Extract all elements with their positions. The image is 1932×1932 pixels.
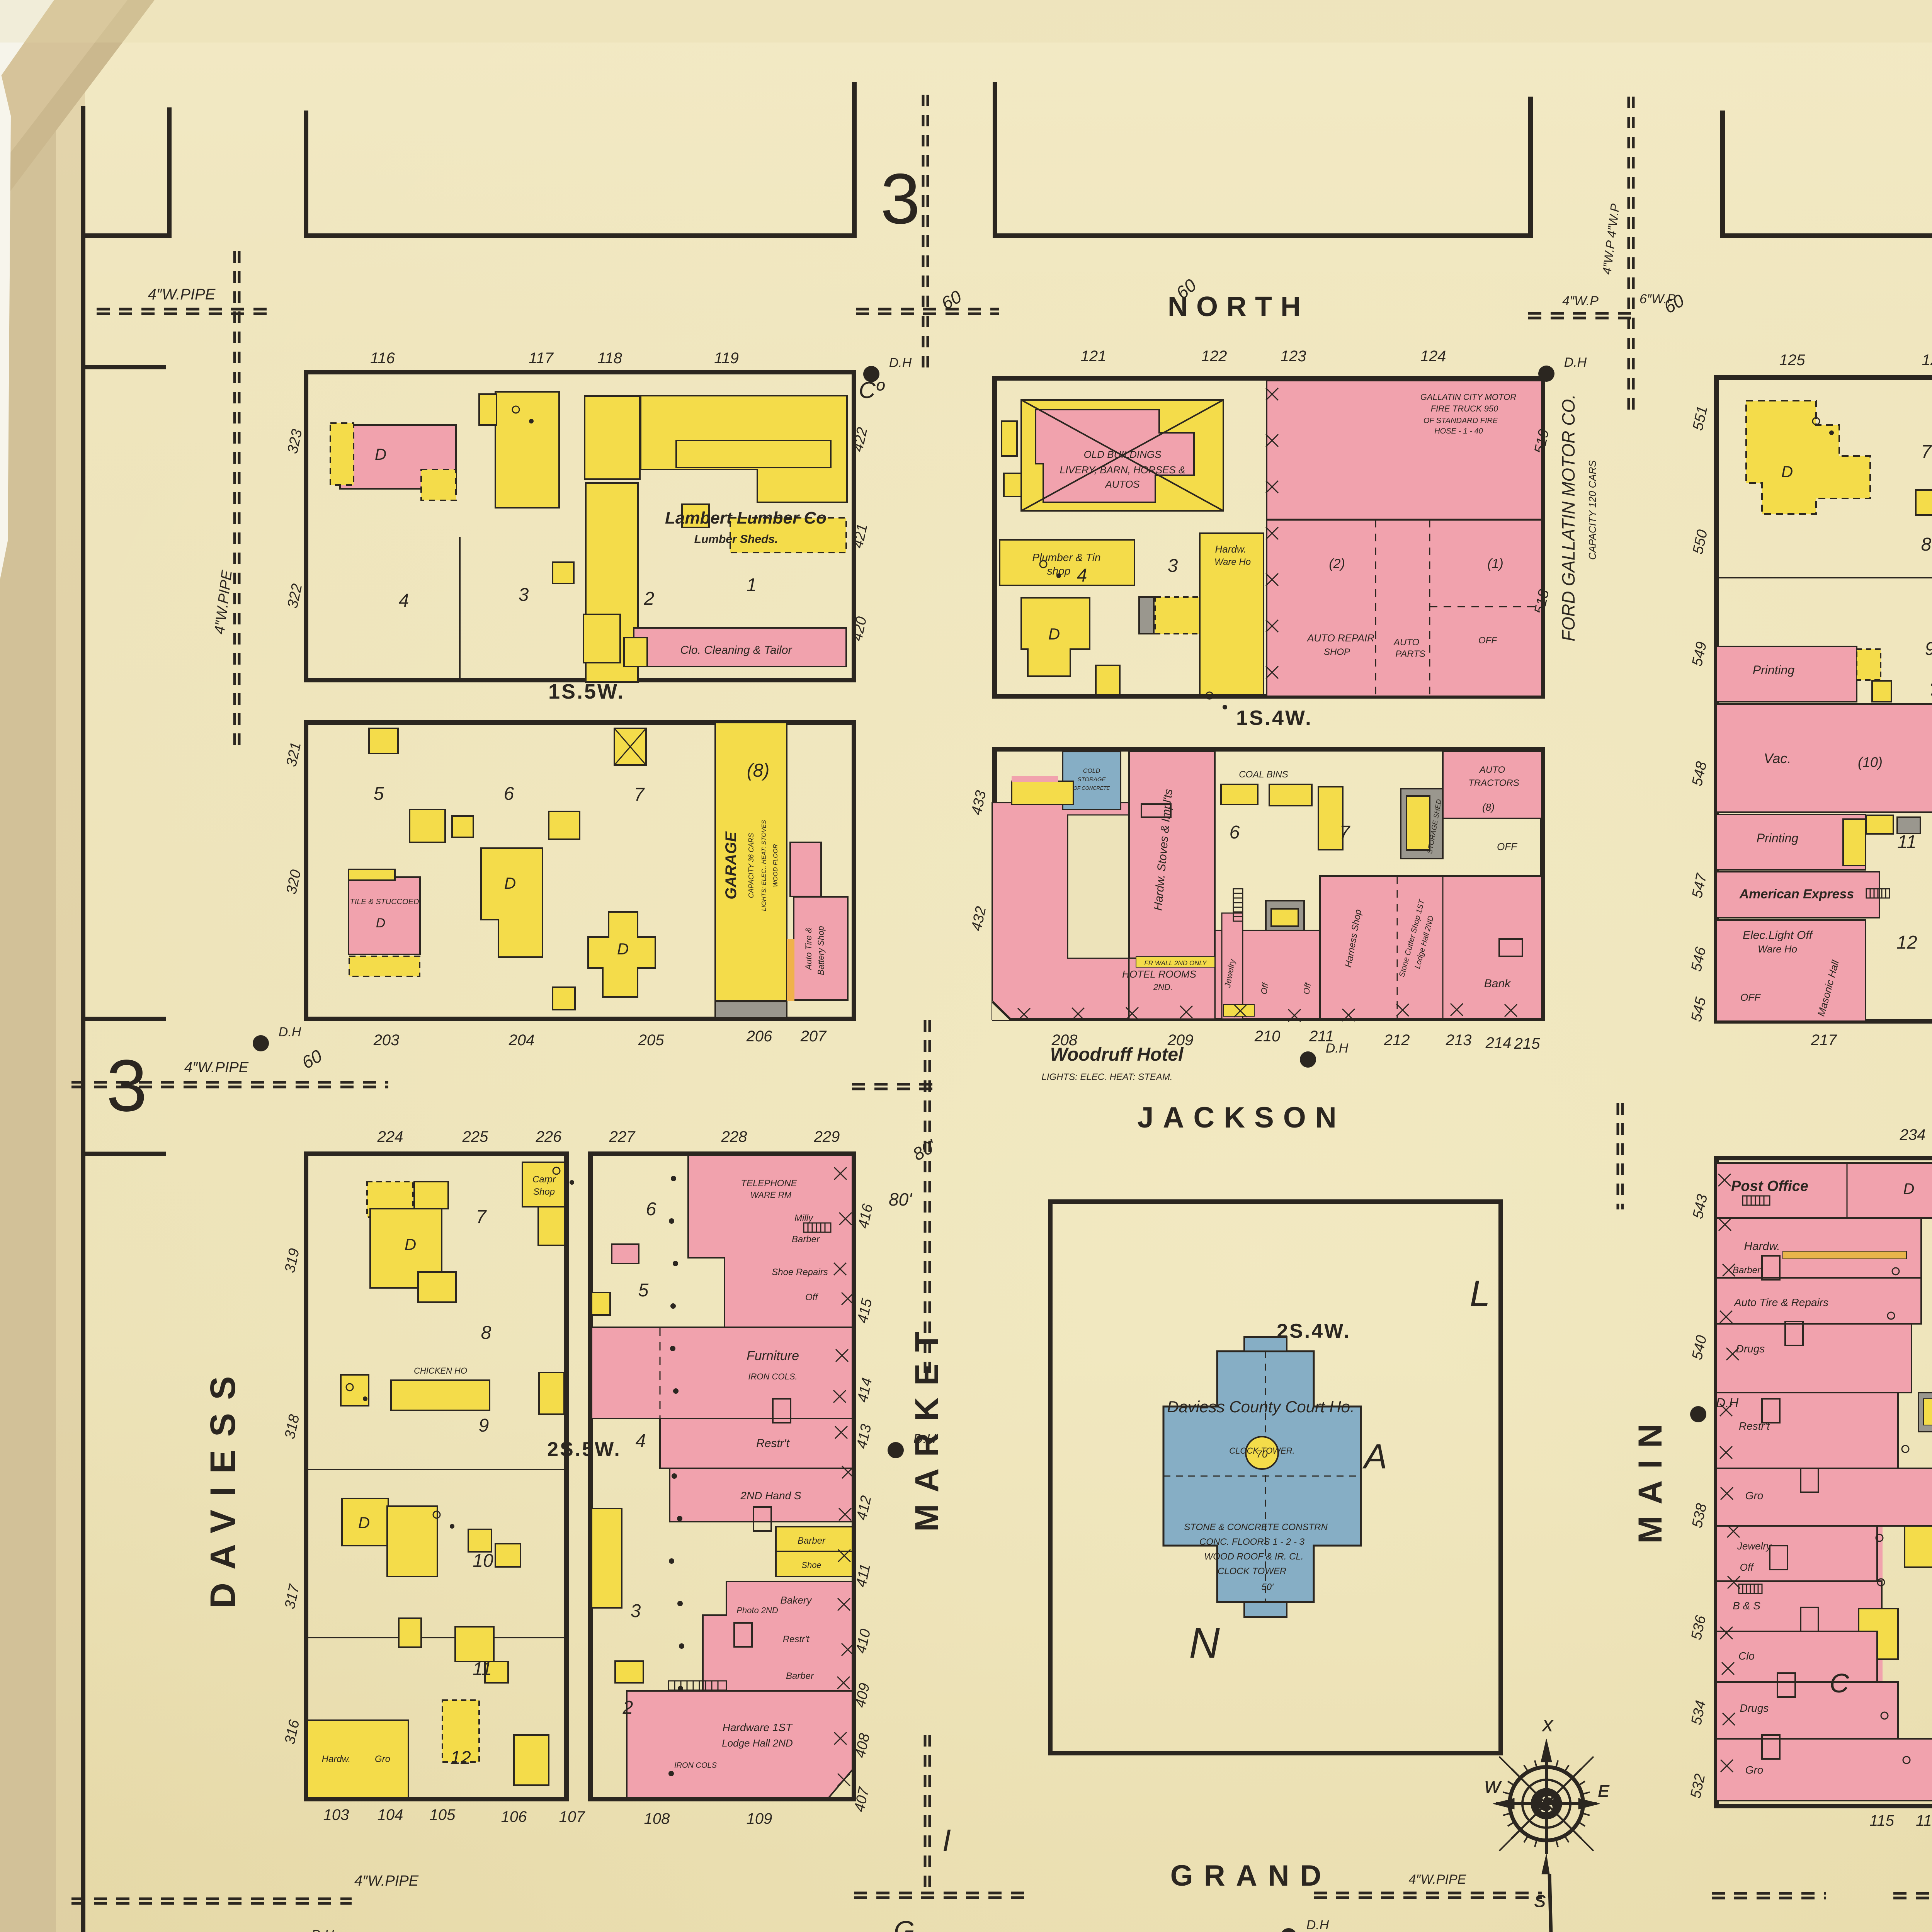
svg-text:Post Office: Post Office bbox=[1731, 1178, 1808, 1194]
svg-text:2S.5W.: 2S.5W. bbox=[547, 1438, 621, 1461]
svg-text:TELEPHONE: TELEPHONE bbox=[741, 1178, 797, 1189]
svg-text:227: 227 bbox=[609, 1128, 636, 1145]
svg-text:7: 7 bbox=[634, 784, 645, 805]
svg-text:204: 204 bbox=[509, 1032, 535, 1049]
svg-text:D: D bbox=[358, 1514, 370, 1532]
svg-text:4: 4 bbox=[399, 590, 409, 611]
svg-text:Elec.Light Off: Elec.Light Off bbox=[1743, 929, 1813, 942]
svg-text:D: D bbox=[405, 1235, 416, 1253]
svg-text:Clo. Cleaning & Tailor: Clo. Cleaning & Tailor bbox=[680, 644, 792, 656]
svg-text:12: 12 bbox=[1896, 932, 1917, 953]
svg-text:11: 11 bbox=[473, 1659, 492, 1679]
svg-text:GRAND: GRAND bbox=[1170, 1859, 1332, 1892]
svg-text:D: D bbox=[1903, 1180, 1915, 1197]
svg-text:Restr't: Restr't bbox=[783, 1634, 810, 1645]
svg-text:234: 234 bbox=[1900, 1126, 1926, 1143]
svg-text:GARAGE: GARAGE bbox=[723, 831, 740, 900]
svg-text:Drugs: Drugs bbox=[1740, 1702, 1769, 1714]
svg-text:118: 118 bbox=[597, 350, 622, 367]
svg-text:109: 109 bbox=[747, 1810, 772, 1827]
svg-text:Printing: Printing bbox=[1753, 663, 1795, 677]
svg-text:(1): (1) bbox=[1487, 556, 1503, 571]
svg-text:Barber: Barber bbox=[792, 1234, 820, 1245]
svg-text:CLOCK TOWER: CLOCK TOWER bbox=[1218, 1566, 1286, 1577]
svg-text:Drugs: Drugs bbox=[1736, 1343, 1765, 1355]
svg-text:CONC. FLOORS 1 - 2 - 3: CONC. FLOORS 1 - 2 - 3 bbox=[1199, 1537, 1305, 1547]
svg-text:2: 2 bbox=[644, 588, 655, 609]
svg-text:4: 4 bbox=[1077, 565, 1087, 586]
svg-text:Shoe Repairs: Shoe Repairs bbox=[772, 1267, 828, 1277]
svg-text:229: 229 bbox=[814, 1128, 840, 1145]
svg-text:Barber: Barber bbox=[786, 1671, 814, 1681]
svg-text:3: 3 bbox=[881, 159, 920, 239]
svg-text:WOOD ROOF & IR. CL.: WOOD ROOF & IR. CL. bbox=[1204, 1551, 1304, 1562]
svg-text:215: 215 bbox=[1514, 1035, 1540, 1052]
svg-text:FIRE TRUCK 950: FIRE TRUCK 950 bbox=[1431, 404, 1499, 413]
svg-text:207: 207 bbox=[800, 1028, 827, 1045]
svg-text:Hardw.: Hardw. bbox=[1215, 543, 1247, 555]
svg-text:11: 11 bbox=[1897, 832, 1917, 852]
svg-text:Off: Off bbox=[1740, 1561, 1754, 1573]
svg-text:X: X bbox=[1542, 1718, 1553, 1735]
svg-text:STONE & CONCRETE CONSTRN: STONE & CONCRETE CONSTRN bbox=[1184, 1522, 1328, 1532]
svg-text:DAVIESS: DAVIESS bbox=[203, 1363, 243, 1608]
svg-text:4″W.PIPE: 4″W.PIPE bbox=[354, 1873, 419, 1889]
svg-text:115: 115 bbox=[1869, 1812, 1895, 1829]
svg-text:4″W.PIPE: 4″W.PIPE bbox=[1409, 1872, 1466, 1887]
svg-text:(10): (10) bbox=[1858, 754, 1883, 770]
svg-text:Restr't: Restr't bbox=[1739, 1420, 1770, 1432]
svg-text:9: 9 bbox=[1925, 639, 1932, 659]
svg-text:MARKET: MARKET bbox=[908, 1320, 946, 1532]
svg-text:214: 214 bbox=[1485, 1034, 1512, 1051]
svg-text:WARE RM: WARE RM bbox=[750, 1190, 792, 1200]
svg-text:206: 206 bbox=[746, 1028, 772, 1045]
svg-text:Plumber & Tin: Plumber & Tin bbox=[1032, 551, 1100, 563]
svg-text:D.H: D.H bbox=[1306, 1918, 1329, 1932]
svg-text:Barber: Barber bbox=[1733, 1265, 1761, 1276]
svg-text:JACKSON: JACKSON bbox=[1137, 1101, 1346, 1134]
svg-text:D: D bbox=[504, 874, 516, 892]
svg-text:AUTO: AUTO bbox=[1479, 765, 1505, 775]
svg-text:103: 103 bbox=[323, 1806, 349, 1823]
svg-text:American Express: American Express bbox=[1739, 887, 1854, 901]
svg-text:126: 126 bbox=[1922, 352, 1932, 369]
svg-text:LIGHTS: ELEC. HEAT: STEAM.: LIGHTS: ELEC. HEAT: STEAM. bbox=[1041, 1072, 1172, 1082]
svg-text:(2): (2) bbox=[1329, 556, 1345, 571]
svg-text:D: D bbox=[375, 445, 386, 463]
svg-text:125: 125 bbox=[1779, 352, 1805, 369]
svg-text:4″W.P: 4″W.P bbox=[1562, 294, 1599, 308]
svg-text:121: 121 bbox=[1081, 348, 1107, 365]
svg-text:Jewelry: Jewelry bbox=[1737, 1540, 1772, 1552]
svg-text:W: W bbox=[1484, 1778, 1502, 1797]
svg-text:5: 5 bbox=[638, 1280, 649, 1301]
svg-text:Auto Tire & Repairs: Auto Tire & Repairs bbox=[1733, 1296, 1828, 1308]
svg-text:Milly: Milly bbox=[794, 1213, 814, 1223]
svg-text:Battery Shop: Battery Shop bbox=[816, 926, 826, 975]
svg-text:OFF: OFF bbox=[1497, 841, 1518, 852]
svg-text:1: 1 bbox=[747, 575, 757, 595]
svg-text:Gro: Gro bbox=[375, 1754, 390, 1764]
svg-text:Ware Ho: Ware Ho bbox=[1214, 557, 1251, 567]
svg-text:CHICKEN HO: CHICKEN HO bbox=[414, 1366, 467, 1376]
svg-text:MAIN: MAIN bbox=[1632, 1412, 1669, 1544]
svg-text:Off: Off bbox=[805, 1292, 818, 1303]
svg-text:IRON COLS.: IRON COLS. bbox=[748, 1372, 797, 1381]
svg-text:Bakery: Bakery bbox=[781, 1594, 813, 1606]
svg-text:117: 117 bbox=[529, 350, 554, 367]
svg-text:80': 80' bbox=[889, 1189, 913, 1209]
svg-text:Gro: Gro bbox=[1745, 1764, 1764, 1776]
svg-text:D.H: D.H bbox=[889, 355, 912, 370]
svg-text:Ware Ho: Ware Ho bbox=[1758, 943, 1797, 955]
svg-text:G.: G. bbox=[894, 1915, 922, 1932]
svg-text:217: 217 bbox=[1811, 1032, 1837, 1049]
svg-text:Hardw.: Hardw. bbox=[322, 1754, 351, 1764]
svg-text:104: 104 bbox=[378, 1806, 403, 1823]
svg-text:FR WALL 2ND ONLY: FR WALL 2ND ONLY bbox=[1144, 959, 1207, 967]
svg-text:116: 116 bbox=[370, 350, 395, 367]
svg-text:106: 106 bbox=[501, 1808, 527, 1825]
svg-text:203: 203 bbox=[373, 1032, 400, 1049]
svg-text:LIGHTS: ELEC.. HEAT: STOVES: LIGHTS: ELEC.. HEAT: STOVES bbox=[761, 820, 767, 911]
svg-text:208: 208 bbox=[1051, 1032, 1078, 1049]
svg-text:WOOD FLOOR: WOOD FLOOR bbox=[772, 844, 779, 887]
svg-text:D.H: D.H bbox=[311, 1927, 334, 1932]
svg-text:10: 10 bbox=[473, 1551, 493, 1571]
svg-text:COLD: COLD bbox=[1083, 768, 1100, 774]
svg-text:PARTS: PARTS bbox=[1395, 649, 1425, 659]
svg-text:205: 205 bbox=[638, 1032, 664, 1049]
svg-text:Gro: Gro bbox=[1745, 1490, 1764, 1502]
svg-text:228: 228 bbox=[721, 1128, 747, 1145]
svg-text:226: 226 bbox=[536, 1128, 562, 1145]
svg-text:225: 225 bbox=[462, 1128, 488, 1145]
svg-text:D: D bbox=[617, 940, 629, 958]
svg-text:IRON COLS: IRON COLS bbox=[674, 1761, 717, 1770]
svg-text:124: 124 bbox=[1420, 348, 1446, 365]
svg-text:Lambert Lumber Co: Lambert Lumber Co bbox=[665, 509, 827, 527]
svg-text:Barber: Barber bbox=[798, 1536, 826, 1546]
svg-text:A: A bbox=[1362, 1437, 1387, 1476]
svg-text:S: S bbox=[1534, 1892, 1545, 1911]
svg-text:Clo: Clo bbox=[1738, 1650, 1755, 1662]
svg-text:E: E bbox=[1598, 1782, 1609, 1801]
svg-text:123: 123 bbox=[1281, 348, 1306, 365]
svg-text:6: 6 bbox=[646, 1199, 656, 1219]
svg-text:210: 210 bbox=[1254, 1028, 1281, 1045]
svg-text:4: 4 bbox=[636, 1431, 646, 1451]
svg-text:12: 12 bbox=[450, 1748, 471, 1768]
svg-text:OFF: OFF bbox=[1740, 992, 1761, 1003]
svg-text:AUTO: AUTO bbox=[1393, 637, 1419, 648]
svg-text:TILE & STUCCOED: TILE & STUCCOED bbox=[350, 898, 419, 906]
svg-text:Lodge Hall 2ND: Lodge Hall 2ND bbox=[722, 1737, 793, 1749]
svg-text:8: 8 bbox=[1921, 534, 1932, 555]
svg-text:1S.5W.: 1S.5W. bbox=[548, 680, 625, 703]
svg-text:Bank: Bank bbox=[1484, 977, 1511, 990]
svg-text:4″W.PIPE: 4″W.PIPE bbox=[184, 1060, 249, 1076]
svg-text:3: 3 bbox=[106, 1045, 147, 1127]
svg-text:107: 107 bbox=[559, 1808, 585, 1825]
svg-text:OF STANDARD FIRE: OF STANDARD FIRE bbox=[1423, 417, 1498, 425]
svg-text:5: 5 bbox=[374, 784, 384, 804]
svg-text:Shop: Shop bbox=[533, 1187, 555, 1197]
svg-text:(8): (8) bbox=[747, 760, 770, 781]
svg-text:HOTEL ROOMS: HOTEL ROOMS bbox=[1122, 968, 1196, 980]
svg-text:209: 209 bbox=[1167, 1032, 1194, 1049]
svg-text:212: 212 bbox=[1384, 1032, 1410, 1049]
svg-text:116: 116 bbox=[1916, 1812, 1932, 1829]
svg-text:Auto Tire &: Auto Tire & bbox=[804, 927, 813, 971]
svg-text:GALLATIN CITY MOTOR: GALLATIN CITY MOTOR bbox=[1420, 392, 1516, 402]
svg-text:6: 6 bbox=[1230, 822, 1240, 843]
svg-text:Carpr: Carpr bbox=[532, 1174, 556, 1185]
svg-text:Printing: Printing bbox=[1757, 831, 1799, 845]
svg-text:1S.3W.: 1S.3W. bbox=[1930, 678, 1932, 700]
svg-text:1S.4W.: 1S.4W. bbox=[1236, 706, 1313, 730]
svg-text:B & S: B & S bbox=[1733, 1600, 1760, 1612]
svg-text:CLOCK TOWER.: CLOCK TOWER. bbox=[1229, 1446, 1295, 1456]
svg-text:Photo 2ND: Photo 2ND bbox=[736, 1605, 778, 1615]
svg-text:3: 3 bbox=[1168, 556, 1178, 576]
svg-text:122: 122 bbox=[1201, 348, 1227, 365]
svg-text:7: 7 bbox=[476, 1207, 487, 1227]
svg-text:FORD GALLATIN MOTOR CO.: FORD GALLATIN MOTOR CO. bbox=[1558, 394, 1578, 641]
svg-text:N: N bbox=[1189, 1619, 1220, 1667]
svg-text:Hardw.: Hardw. bbox=[1744, 1240, 1780, 1253]
svg-text:L: L bbox=[1470, 1273, 1490, 1314]
svg-text:50': 50' bbox=[1261, 1582, 1274, 1592]
svg-text:D: D bbox=[376, 916, 386, 930]
svg-text:SHOP: SHOP bbox=[1324, 647, 1350, 657]
svg-text:119: 119 bbox=[714, 350, 739, 367]
svg-text:STORAGE: STORAGE bbox=[1077, 776, 1106, 783]
svg-text:OFF: OFF bbox=[1478, 635, 1497, 646]
svg-text:(8): (8) bbox=[1482, 801, 1495, 813]
svg-text:LIVERY, BARN, HORSES &: LIVERY, BARN, HORSES & bbox=[1060, 464, 1185, 476]
svg-text:TRACTORS: TRACTORS bbox=[1468, 778, 1519, 788]
svg-text:I: I bbox=[942, 1823, 951, 1857]
svg-text:D: D bbox=[1048, 625, 1060, 643]
svg-text:C: C bbox=[1830, 1668, 1849, 1698]
svg-text:Daviess County Court Ho.: Daviess County Court Ho. bbox=[1167, 1398, 1355, 1416]
svg-text:CAPACITY 36 CARS: CAPACITY 36 CARS bbox=[747, 833, 755, 898]
svg-text:D.H: D.H bbox=[1564, 355, 1587, 370]
svg-text:CAPACITY 120 CARS: CAPACITY 120 CARS bbox=[1587, 460, 1598, 560]
svg-text:8: 8 bbox=[481, 1323, 492, 1343]
svg-text:2S.4W.: 2S.4W. bbox=[1277, 1320, 1351, 1342]
svg-text:6: 6 bbox=[504, 784, 514, 804]
svg-text:HOSE - 1 - 40: HOSE - 1 - 40 bbox=[1434, 427, 1483, 435]
svg-text:AUTOS: AUTOS bbox=[1104, 478, 1140, 490]
svg-text:D: D bbox=[1781, 463, 1793, 481]
svg-text:2: 2 bbox=[622, 1697, 633, 1718]
svg-text:D.H: D.H bbox=[1326, 1041, 1349, 1056]
svg-text:COAL BINS: COAL BINS bbox=[1239, 769, 1288, 780]
svg-text:Shoe: Shoe bbox=[801, 1560, 821, 1570]
svg-text:D.H: D.H bbox=[279, 1025, 301, 1039]
svg-text:7: 7 bbox=[1340, 822, 1351, 843]
svg-text:4″W.PIPE: 4″W.PIPE bbox=[148, 286, 216, 303]
svg-text:3: 3 bbox=[631, 1601, 641, 1621]
svg-text:Restr't: Restr't bbox=[756, 1437, 790, 1450]
svg-text:Lumber Sheds.: Lumber Sheds. bbox=[694, 533, 778, 546]
svg-text:OF CONCRETE: OF CONCRETE bbox=[1073, 785, 1110, 791]
svg-text:7: 7 bbox=[1921, 442, 1932, 462]
svg-text:2ND.: 2ND. bbox=[1153, 982, 1173, 992]
svg-text:108: 108 bbox=[644, 1810, 670, 1827]
svg-text:Furniture: Furniture bbox=[747, 1349, 799, 1363]
svg-text:AUTO REPAIR: AUTO REPAIR bbox=[1306, 632, 1374, 644]
svg-text:9: 9 bbox=[479, 1415, 489, 1436]
svg-text:Hardware 1ST: Hardware 1ST bbox=[723, 1721, 793, 1733]
svg-text:OLD BUILDINGS: OLD BUILDINGS bbox=[1084, 449, 1162, 460]
svg-text:2ND Hand S: 2ND Hand S bbox=[740, 1490, 801, 1502]
svg-text:224: 224 bbox=[377, 1128, 403, 1145]
svg-text:Cº: Cº bbox=[859, 377, 885, 403]
svg-text:213: 213 bbox=[1446, 1032, 1472, 1049]
svg-text:105: 105 bbox=[430, 1806, 456, 1823]
svg-text:Vac.: Vac. bbox=[1764, 750, 1791, 766]
svg-text:D.H: D.H bbox=[913, 1432, 936, 1446]
svg-text:3: 3 bbox=[519, 585, 529, 605]
